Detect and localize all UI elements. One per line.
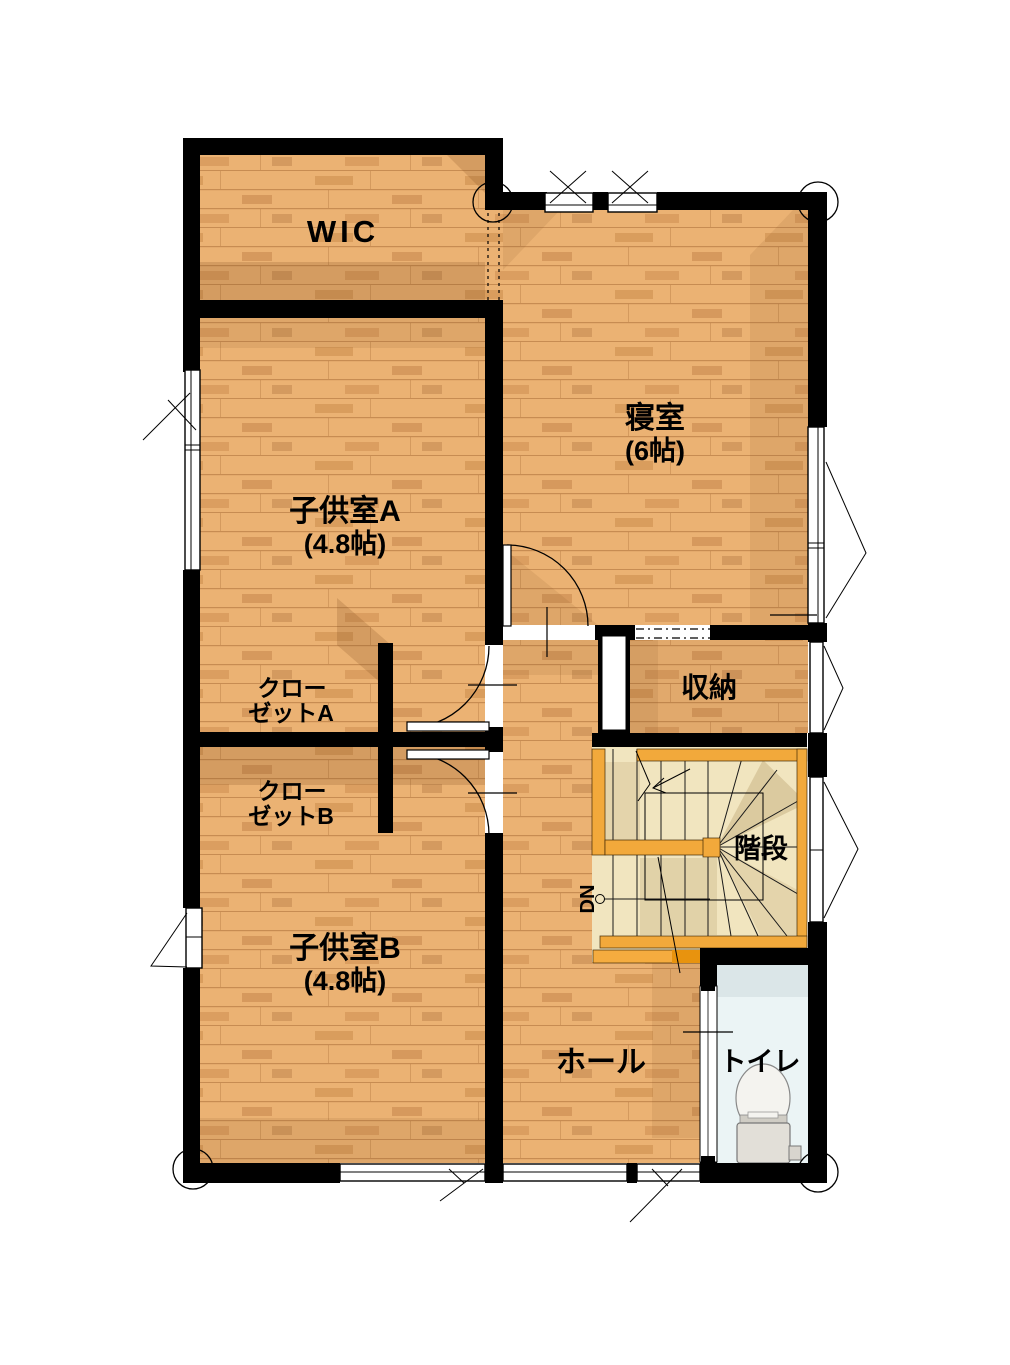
floor-plan-canvas: WIC 寝室 (6帖) 子供室A (4.8帖) クロー ゼットA クロー ゼット… <box>0 0 1010 1365</box>
child-a-side-window <box>185 370 200 570</box>
shadow <box>200 262 485 302</box>
wall-segment <box>593 192 608 210</box>
window-swing-mark <box>824 646 843 730</box>
toilet-sliding-door <box>700 986 717 1162</box>
child-a-door-leaf <box>407 722 489 731</box>
shadow <box>630 640 658 733</box>
wall-segment <box>485 192 547 210</box>
wall-segment <box>183 1163 340 1183</box>
closet-divider-wall <box>378 643 393 833</box>
shadow <box>750 210 808 625</box>
stair-shade <box>605 762 640 840</box>
shadow <box>717 965 808 997</box>
bedroom-door-leaf <box>503 545 511 626</box>
shadow <box>200 1118 485 1163</box>
stairs-down-label: DN <box>577 885 599 914</box>
storage-side-window <box>810 642 823 733</box>
floor-plan: WIC 寝室 (6帖) 子供室A (4.8帖) クロー ゼットA クロー ゼット… <box>0 0 1010 1365</box>
wall-segment <box>183 300 503 318</box>
closet-b-label-line1: クロー <box>258 778 327 804</box>
toilet-door-stop <box>701 985 715 991</box>
wall-segment <box>485 833 503 1163</box>
window-swing-mark <box>826 462 866 618</box>
child-b-side-window <box>186 908 202 968</box>
wall-segment <box>700 948 827 965</box>
shadow <box>200 318 485 348</box>
storage-label: 収納 <box>681 671 737 703</box>
bedroom-doorway <box>503 625 595 640</box>
closet-a-label-line2: ゼットA <box>248 700 334 726</box>
child-room-b-label: 子供室B <box>289 931 401 965</box>
wall-segment <box>808 733 827 777</box>
wall-segment <box>183 732 503 747</box>
wall-segment <box>700 1163 827 1183</box>
wall-segment <box>592 733 807 747</box>
toilet-tank <box>737 1123 790 1163</box>
child-room-b-size-label: (4.8帖) <box>304 966 387 996</box>
window-swing-mark <box>824 782 858 918</box>
wall-segment <box>808 192 827 427</box>
wic-label: WIC <box>307 214 379 249</box>
toilet-lid-detail <box>748 1112 778 1118</box>
wall-segment <box>183 138 200 372</box>
closet-b-label-line2: ゼットB <box>248 803 334 829</box>
child-room-a-size-label: (4.8帖) <box>304 529 387 559</box>
window-swing-mark <box>151 913 187 967</box>
stair-shade <box>640 858 717 935</box>
child-room-a-label: 子供室A <box>289 494 401 528</box>
toilet-flush-handle <box>789 1146 801 1160</box>
wall-segment <box>657 192 827 210</box>
wall-segment <box>485 1163 503 1183</box>
wall-segment <box>183 138 503 155</box>
child-b-door-leaf <box>407 750 489 759</box>
closet-a-label-line1: クロー <box>258 675 327 701</box>
bedroom-label: 寝室 <box>625 401 685 435</box>
shadow <box>503 640 598 675</box>
bedroom-side-window <box>808 427 824 623</box>
wall-segment <box>710 625 827 640</box>
bedroom-top-window-2 <box>608 193 657 212</box>
toilet-label: トイレ <box>720 1047 801 1077</box>
stairs-label: 階段 <box>734 834 788 864</box>
wall-segment <box>627 1163 637 1183</box>
toilet-door-stop <box>701 1156 715 1162</box>
bedroom-size-label: (6帖) <box>625 436 685 466</box>
storage-door <box>602 636 626 730</box>
shadow <box>652 963 700 1138</box>
hall-label: ホール <box>556 1046 646 1079</box>
wall-segment <box>485 318 503 645</box>
